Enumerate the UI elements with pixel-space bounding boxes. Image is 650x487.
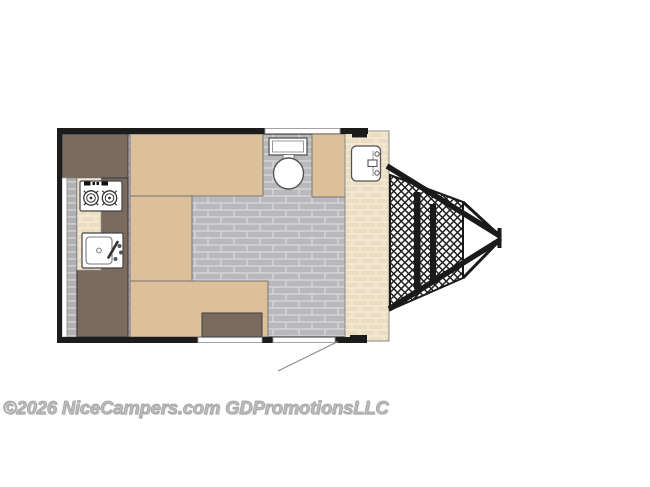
watermark-text: ©2026 NiceCampers.com GDPromotionsLLC: [3, 397, 389, 419]
two-burner-cooktop: [80, 181, 122, 211]
table: [202, 313, 262, 337]
left-brick-strip: [67, 178, 77, 337]
door-swing: [278, 342, 338, 372]
bathroom-sink: [352, 146, 381, 181]
dinette-bench-top: [130, 134, 263, 196]
mesh-rock-guard: [390, 175, 463, 310]
kitchen-sink: [82, 233, 123, 268]
tongue-cross-bar: [414, 192, 421, 289]
entry-door-opening: [273, 338, 335, 343]
left-side-window: [62, 178, 67, 337]
tongue-cross-bar: [430, 204, 436, 281]
bottom-window: [198, 338, 262, 343]
rear-window: [265, 129, 340, 134]
wardrobe-cabinet: [62, 134, 128, 178]
a-frame-tongue: [387, 166, 501, 310]
floorplan-canvas: ©2026 NiceCampers.com GDPromotionsLLC: [0, 0, 650, 487]
dinette-bench-right-of-toilet: [312, 134, 345, 197]
